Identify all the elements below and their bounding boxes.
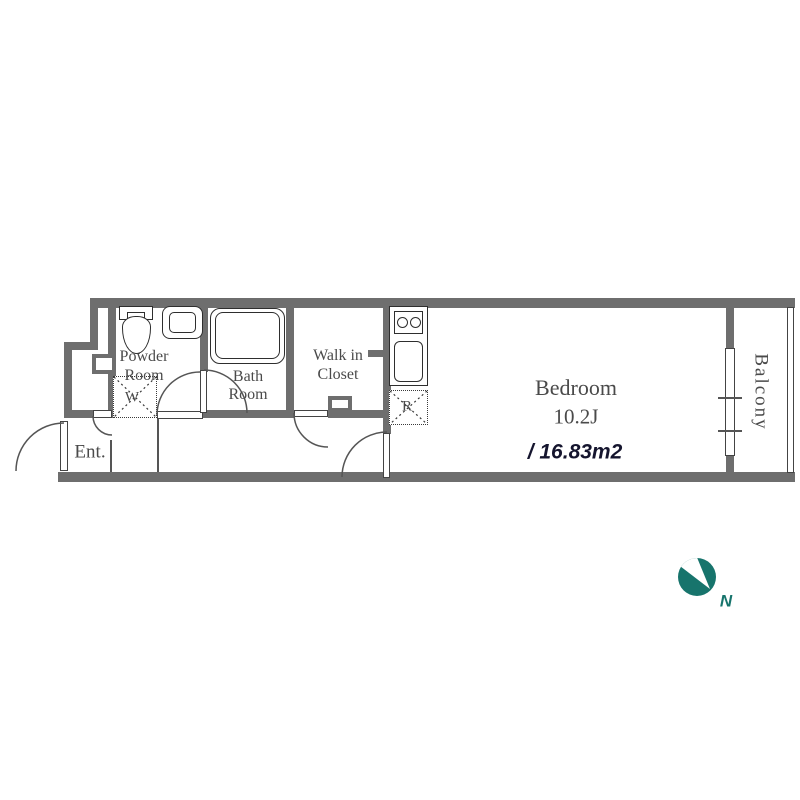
bedroom-door-leaf [383, 433, 390, 478]
bedroom-area-label: / 16.83m2 [528, 442, 623, 463]
hall-door-arc [93, 416, 112, 435]
window-tick-lower [718, 430, 742, 432]
powder-door-leaf [157, 411, 203, 419]
wall-bath-closet-divider [286, 298, 294, 418]
bath-door-leaf [200, 370, 207, 413]
sink-basin-icon [169, 312, 196, 333]
closet-pillar [328, 396, 352, 412]
bath-room-label-line2: Room [228, 387, 267, 403]
entrance-step-line [157, 418, 159, 472]
kitchen-sink-icon [394, 341, 423, 382]
balcony-label: Balcony [752, 353, 771, 430]
balcony-railing [787, 307, 794, 473]
stove-burner-right-icon [410, 317, 421, 328]
refrigerator-space-label: R [402, 400, 412, 415]
window-tick-upper [718, 397, 742, 399]
walk-in-closet-label-line2: Closet [318, 367, 359, 383]
walk-in-closet-label-line1: Walk in [313, 348, 363, 364]
wall-closet-stub [368, 350, 391, 357]
wall-entrance-top [64, 410, 93, 418]
bathtub-inner-icon [215, 312, 280, 359]
compass-icon [676, 555, 716, 596]
bath-room-label-line1: Bath [233, 369, 263, 385]
stove-burner-left-icon [397, 317, 408, 328]
bedroom-name-label: Bedroom [535, 377, 617, 399]
bedroom-balcony-window [725, 348, 735, 456]
closet-door-leaf [294, 410, 328, 417]
bedroom-door-arc [342, 432, 387, 477]
washer-space-label: W [125, 391, 139, 406]
entrance-door-arc [16, 423, 64, 471]
hall-door-leaf [93, 410, 112, 418]
wall-bath-bottom [203, 410, 294, 418]
entrance-door-leaf [60, 421, 68, 471]
floor-plan: Ent. Powder Room W Bath Room Walk in Clo… [0, 0, 800, 800]
compass-north-label: N [720, 593, 732, 610]
powder-room-label-line1: Powder [120, 349, 169, 365]
wall-bottom [58, 472, 795, 482]
entrance-genkan-line [110, 440, 112, 472]
powder-room-label-line2: Room [124, 368, 163, 384]
wall-left-mid [64, 342, 72, 418]
closet-door-arc [294, 413, 328, 447]
meter-box [92, 354, 116, 374]
bedroom-size-label: 10.2J [554, 407, 599, 428]
entrance-label: Ent. [74, 443, 105, 462]
